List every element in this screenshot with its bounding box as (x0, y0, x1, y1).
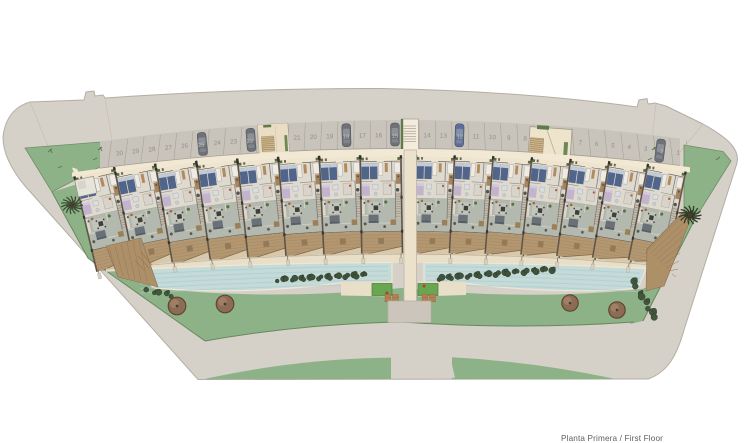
svg-text:29: 29 (132, 148, 140, 156)
svg-text:14: 14 (424, 132, 432, 139)
svg-text:30: 30 (116, 150, 124, 158)
svg-text:19: 19 (326, 133, 334, 140)
svg-text:15: 15 (392, 134, 398, 140)
svg-text:22: 22 (247, 139, 254, 145)
svg-text:24: 24 (213, 140, 221, 148)
svg-text:21: 21 (293, 135, 301, 142)
svg-text:12: 12 (457, 134, 464, 140)
svg-text:10: 10 (489, 134, 497, 141)
svg-text:27: 27 (165, 144, 173, 152)
svg-text:Planta Primera / First Floor: Planta Primera / First Floor (561, 434, 663, 443)
svg-text:16: 16 (375, 132, 383, 139)
svg-text:23: 23 (230, 138, 238, 146)
svg-text:20: 20 (310, 134, 318, 141)
svg-text:11: 11 (473, 133, 480, 140)
svg-text:25: 25 (198, 143, 205, 150)
svg-text:18: 18 (343, 134, 350, 140)
svg-text:28: 28 (148, 146, 156, 154)
svg-text:26: 26 (181, 143, 189, 151)
svg-text:13: 13 (440, 133, 448, 140)
svg-text:17: 17 (359, 133, 367, 140)
